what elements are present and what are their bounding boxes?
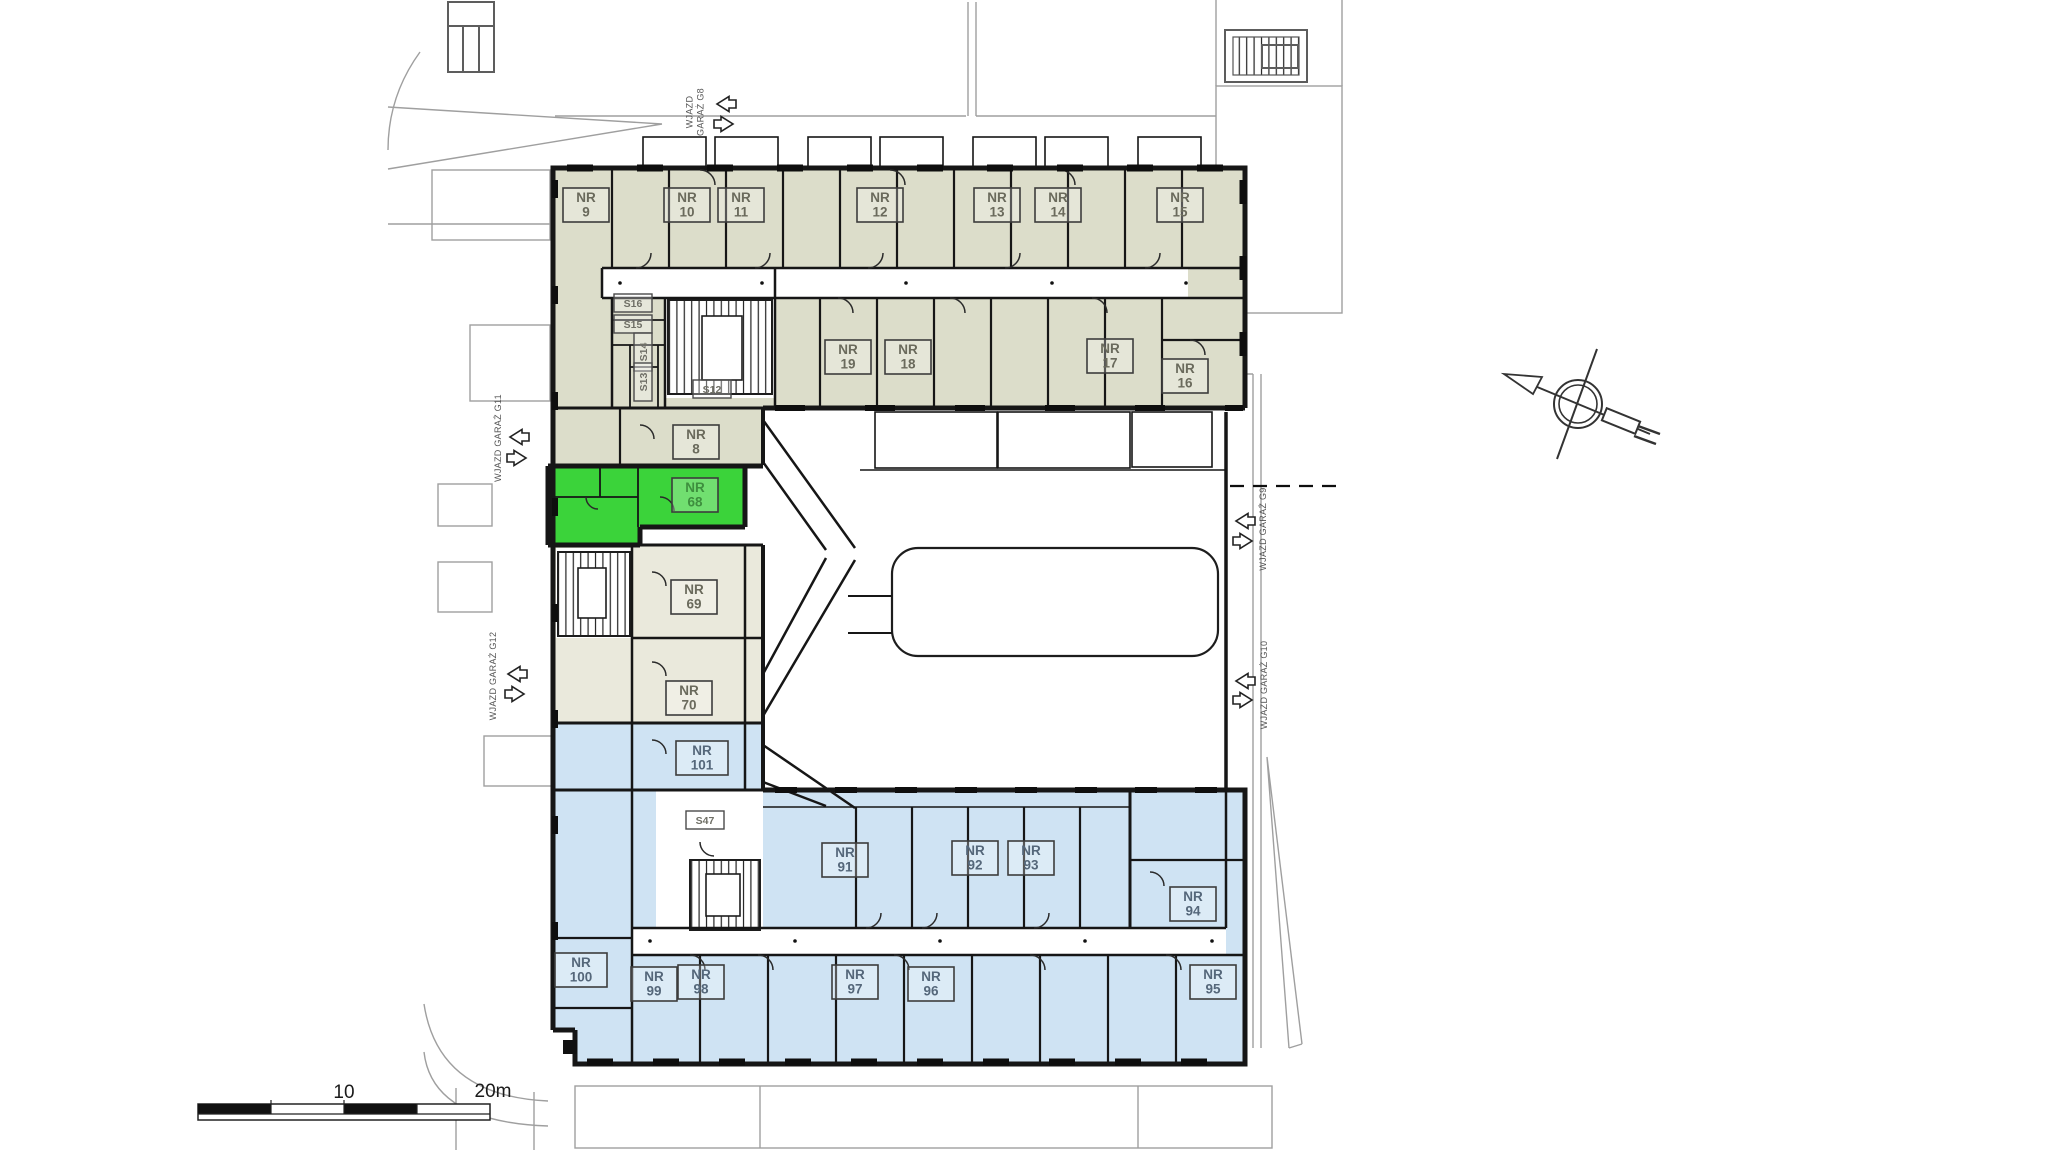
svg-text:93: 93 <box>1023 858 1039 873</box>
arrow-right-icon <box>1233 534 1252 549</box>
service-label-s15: S15 <box>614 315 652 333</box>
svg-text:S47: S47 <box>696 815 715 827</box>
svg-text:98: 98 <box>693 982 709 997</box>
svg-text:NR: NR <box>898 342 918 357</box>
svg-text:NR: NR <box>1175 361 1195 376</box>
svg-text:NR: NR <box>576 190 596 205</box>
svg-text:WJAZD GARAŻ G10: WJAZD GARAŻ G10 <box>1259 641 1269 730</box>
room-label-nr-99: NR99 <box>631 967 677 1001</box>
svg-text:NR: NR <box>686 427 706 442</box>
svg-text:101: 101 <box>691 758 714 773</box>
arrow-right-icon <box>505 687 524 702</box>
service-label-s13: S13 <box>634 363 652 401</box>
garage-entry-g11: WJAZD GARAŻ G11 <box>493 394 529 482</box>
svg-text:8: 8 <box>692 442 700 457</box>
svg-text:96: 96 <box>923 984 939 999</box>
svg-text:99: 99 <box>646 984 661 999</box>
scale-end-label: 20m <box>475 1081 512 1102</box>
svg-text:9: 9 <box>582 205 590 220</box>
room-label-nr-69: NR69 <box>671 580 717 614</box>
svg-text:S15: S15 <box>624 319 643 331</box>
svg-text:16: 16 <box>1177 376 1193 391</box>
room-label-nr-91: NR91 <box>822 843 868 877</box>
svg-text:NR: NR <box>685 480 705 495</box>
room-label-nr-97: NR97 <box>832 965 878 999</box>
garage-entry-g9: WJAZD GARAŻ G9 <box>1233 487 1268 570</box>
site-stair-topright <box>1225 30 1307 82</box>
room-label-nr-94: NR94 <box>1170 887 1216 921</box>
svg-text:NR: NR <box>1203 967 1223 982</box>
svg-text:NR: NR <box>644 969 664 984</box>
room-label-nr-101: NR101 <box>676 741 728 775</box>
svg-text:S12: S12 <box>703 384 722 396</box>
arrow-right-icon <box>507 451 526 466</box>
site-structure-topleft <box>448 2 494 72</box>
floorplan-canvas: NR9NR10NR11NR12NR13NR14NR15NR19NR18NR17N… <box>0 0 2048 1151</box>
svg-text:S14: S14 <box>638 343 650 362</box>
svg-text:NR: NR <box>921 969 941 984</box>
room-label-nr-96: NR96 <box>908 967 954 1001</box>
garage-entry-g10: WJAZD GARAŻ G10 <box>1233 641 1269 730</box>
svg-text:69: 69 <box>686 597 701 612</box>
svg-text:NR: NR <box>835 845 855 860</box>
svg-text:NR: NR <box>679 683 699 698</box>
svg-text:NR: NR <box>870 190 890 205</box>
room-label-nr-16: NR16 <box>1162 359 1208 393</box>
svg-text:NR: NR <box>691 967 711 982</box>
floorplan-page: NR9NR10NR11NR12NR13NR14NR15NR19NR18NR17N… <box>0 0 2048 1151</box>
svg-text:GARAŻ G8: GARAŻ G8 <box>696 88 706 136</box>
svg-text:95: 95 <box>1205 982 1221 997</box>
room-label-nr-19: NR19 <box>825 340 871 374</box>
room-label-nr-12: NR12 <box>857 188 903 222</box>
room-label-nr-11: NR11 <box>718 188 764 222</box>
svg-text:NR: NR <box>692 743 712 758</box>
room-label-nr-98: NR98 <box>678 965 724 999</box>
room-label-nr-9: NR9 <box>563 188 609 222</box>
svg-text:NR: NR <box>1170 190 1190 205</box>
svg-text:NR: NR <box>684 582 704 597</box>
arrow-left-icon <box>510 430 529 445</box>
arrow-right-icon <box>714 117 733 132</box>
svg-text:S16: S16 <box>624 298 643 310</box>
service-label-s47: S47 <box>686 811 724 829</box>
svg-text:18: 18 <box>900 357 916 372</box>
room-label-nr-8: NR8 <box>673 425 719 459</box>
room-label-nr-13: NR13 <box>974 188 1020 222</box>
ramp-loop <box>848 548 1218 656</box>
arrow-left-icon <box>508 667 527 682</box>
svg-text:10: 10 <box>679 205 694 220</box>
garage-entry-g8: WJAZDGARAŻ G8 <box>685 88 737 136</box>
svg-text:100: 100 <box>570 970 593 985</box>
svg-text:NR: NR <box>731 190 751 205</box>
scale-bar: 10 20m <box>198 1081 511 1120</box>
svg-text:NR: NR <box>677 190 697 205</box>
service-label-s12: S12 <box>693 380 731 398</box>
svg-text:NR: NR <box>571 955 591 970</box>
svg-text:92: 92 <box>967 858 982 873</box>
scale-mid-label: 10 <box>333 1082 354 1103</box>
room-label-nr-10: NR10 <box>664 188 710 222</box>
arrow-left-icon <box>1236 514 1255 529</box>
room-label-nr-15: NR15 <box>1157 188 1203 222</box>
svg-text:NR: NR <box>1048 190 1068 205</box>
service-label-s16: S16 <box>614 294 652 312</box>
svg-text:WJAZD GARAŻ G12: WJAZD GARAŻ G12 <box>488 632 498 721</box>
svg-text:68: 68 <box>687 495 703 510</box>
svg-text:NR: NR <box>1021 843 1041 858</box>
room-label-nr-14: NR14 <box>1035 188 1081 222</box>
svg-text:91: 91 <box>837 860 853 875</box>
svg-text:NR: NR <box>838 342 858 357</box>
arrow-left-icon <box>717 97 736 112</box>
svg-text:NR: NR <box>987 190 1007 205</box>
svg-text:WJAZD GARAŻ G9: WJAZD GARAŻ G9 <box>1258 487 1268 570</box>
svg-text:NR: NR <box>965 843 985 858</box>
arrow-left-icon <box>1236 674 1255 689</box>
svg-text:70: 70 <box>681 698 696 713</box>
svg-text:15: 15 <box>1172 205 1188 220</box>
svg-text:12: 12 <box>872 205 887 220</box>
room-label-nr-17: NR17 <box>1087 339 1133 373</box>
compass-icon <box>1504 349 1660 459</box>
svg-text:97: 97 <box>847 982 862 997</box>
room-label-nr-92: NR92 <box>952 841 998 875</box>
svg-text:NR: NR <box>1183 889 1203 904</box>
svg-text:94: 94 <box>1185 904 1201 919</box>
svg-text:19: 19 <box>840 357 855 372</box>
svg-text:14: 14 <box>1050 205 1066 220</box>
arrow-right-icon <box>1233 693 1252 708</box>
svg-text:NR: NR <box>845 967 865 982</box>
svg-text:S13: S13 <box>638 373 650 392</box>
svg-text:11: 11 <box>734 205 749 220</box>
room-label-nr-68[interactable]: NR68 <box>672 478 718 512</box>
svg-text:WJAZD: WJAZD <box>685 96 695 129</box>
room-label-nr-18: NR18 <box>885 340 931 374</box>
garage-entry-g12: WJAZD GARAŻ G12 <box>488 632 527 721</box>
room-label-nr-70: NR70 <box>666 681 712 715</box>
room-label-nr-100: NR100 <box>555 953 607 987</box>
svg-text:NR: NR <box>1100 341 1120 356</box>
svg-text:17: 17 <box>1102 356 1117 371</box>
svg-text:WJAZD GARAŻ G11: WJAZD GARAŻ G11 <box>493 394 503 482</box>
svg-text:13: 13 <box>989 205 1005 220</box>
room-label-nr-95: NR95 <box>1190 965 1236 999</box>
room-label-nr-93: NR93 <box>1008 841 1054 875</box>
